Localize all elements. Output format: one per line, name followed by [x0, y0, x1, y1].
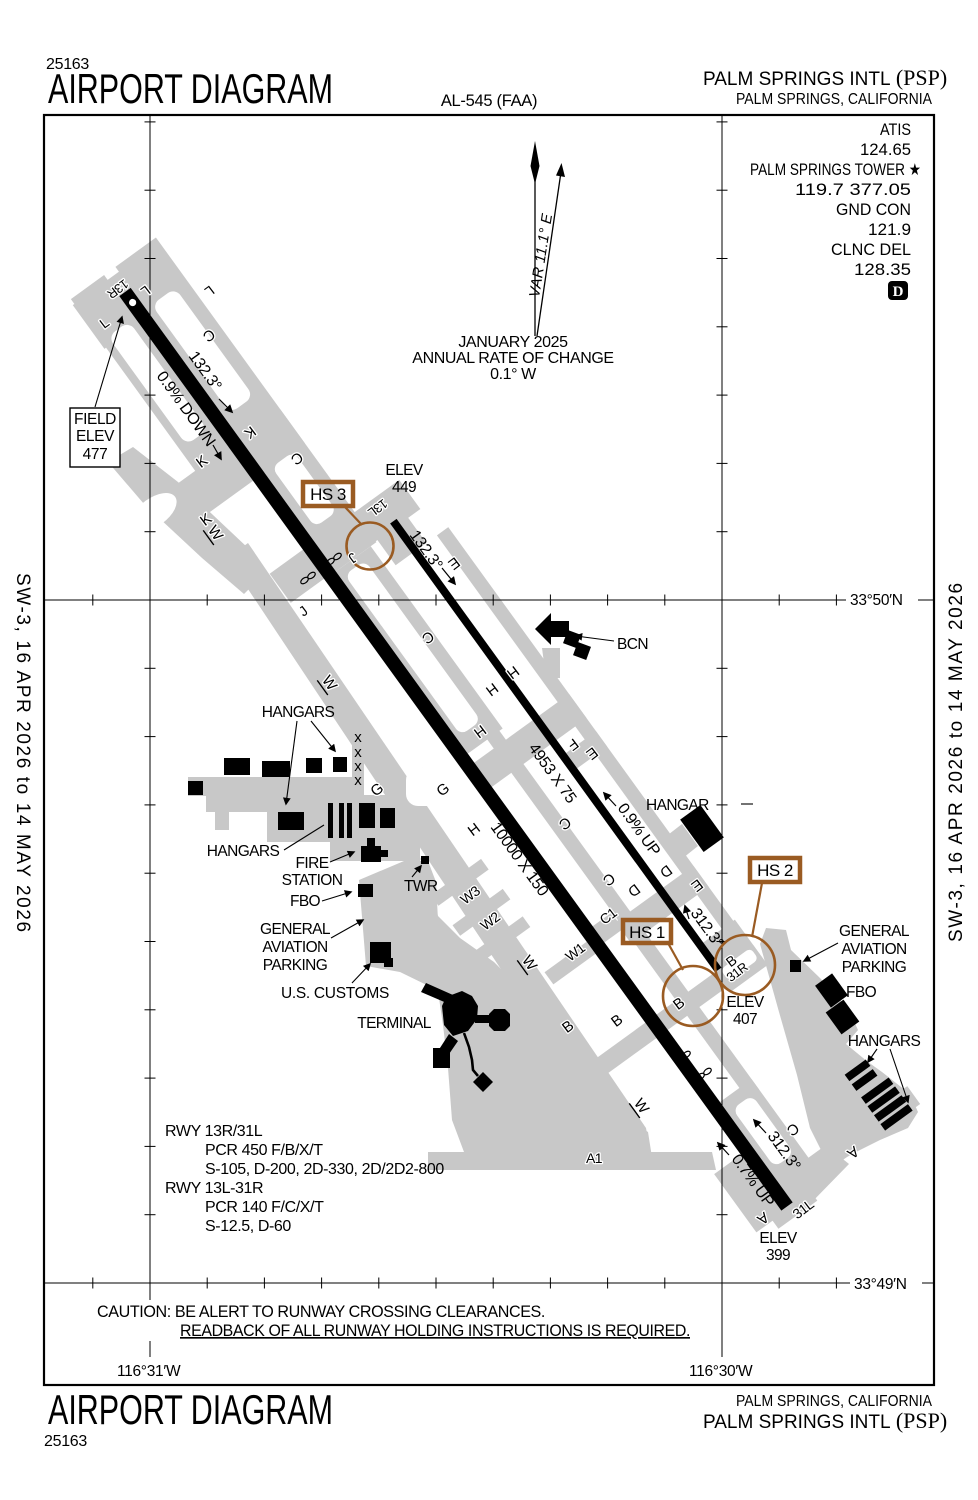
svg-text:S-12.5, D-60: S-12.5, D-60 — [205, 1218, 291, 1235]
svg-text:PALM SPRINGS, CALIFORNIA: PALM SPRINGS, CALIFORNIA — [736, 91, 932, 108]
svg-text:FIELD: FIELD — [74, 411, 116, 428]
svg-text:25163: 25163 — [44, 1433, 87, 1450]
svg-text:GENERAL: GENERAL — [260, 921, 331, 938]
svg-text:JANUARY 2025: JANUARY 2025 — [458, 334, 568, 351]
svg-text:S-105, D-200, 2D-330, 2D/2D2-8: S-105, D-200, 2D-330, 2D/2D2-800 — [205, 1161, 444, 1178]
svg-text:AIRPORT DIAGRAM: AIRPORT DIAGRAM — [48, 1386, 333, 1433]
svg-text:PALM SPRINGS TOWER ★: PALM SPRINGS TOWER ★ — [750, 161, 921, 179]
svg-text:FIRE: FIRE — [296, 855, 329, 872]
svg-text:121.9: 121.9 — [868, 221, 911, 239]
svg-text:CLNC DEL: CLNC DEL — [831, 241, 911, 259]
svg-text:HS 1: HS 1 — [629, 923, 665, 942]
svg-text:ELEV: ELEV — [759, 1230, 797, 1247]
svg-text:U.S. CUSTOMS: U.S. CUSTOMS — [281, 985, 389, 1002]
svg-text:SW-3, 16 APR 2026 to 14 MAY: SW-3, 16 APR 2026 to 14 MAY 2026 — [946, 581, 967, 942]
svg-text:PALM SPRINGS INTL (PSP): PALM SPRINGS INTL (PSP) — [703, 1408, 947, 1433]
svg-text:AL-545 (FAA): AL-545 (FAA) — [441, 92, 537, 110]
svg-text:ELEV: ELEV — [726, 994, 764, 1011]
svg-text:407: 407 — [733, 1011, 757, 1028]
svg-text:TWR: TWR — [404, 878, 438, 895]
svg-text:HANGARS: HANGARS — [848, 1033, 921, 1050]
svg-text:D: D — [656, 861, 675, 881]
svg-text:D: D — [893, 284, 904, 300]
svg-text:ELEV: ELEV — [76, 428, 115, 445]
svg-text:116°30′W: 116°30′W — [689, 1363, 753, 1380]
svg-text:AVIATION: AVIATION — [841, 941, 906, 958]
svg-text:RWY 13L-31R: RWY 13L-31R — [165, 1180, 263, 1197]
svg-text:FBO: FBO — [846, 984, 877, 1001]
svg-text:HANGARS: HANGARS — [207, 843, 280, 860]
svg-text:AVIATION: AVIATION — [262, 939, 327, 956]
svg-text:READBACK OF ALL RUNWAY HOLDING: READBACK OF ALL RUNWAY HOLDING INSTRUCTI… — [180, 1322, 690, 1340]
svg-text:HS 3: HS 3 — [310, 485, 346, 504]
svg-text:BCN: BCN — [617, 636, 648, 653]
svg-text:PARKING: PARKING — [263, 957, 327, 974]
svg-text:128.35: 128.35 — [854, 261, 911, 279]
svg-text:RWY 13R/31L: RWY 13R/31L — [165, 1123, 263, 1140]
svg-text:H: H — [465, 820, 483, 840]
svg-text:H: H — [483, 679, 501, 699]
svg-text:449: 449 — [392, 479, 416, 496]
svg-text:B: B — [608, 1011, 626, 1031]
svg-text:D: D — [624, 880, 643, 900]
svg-text:A1: A1 — [586, 1150, 603, 1166]
svg-text:33°49′N: 33°49′N — [854, 1276, 907, 1293]
svg-text:CAUTION: BE ALERT TO RUNWAY CR: CAUTION: BE ALERT TO RUNWAY CROSSING CLE… — [97, 1303, 545, 1321]
svg-text:GENERAL: GENERAL — [839, 923, 910, 940]
svg-text:HS 2: HS 2 — [757, 861, 793, 880]
svg-text:0.1° W: 0.1° W — [490, 366, 537, 383]
svg-text:AIRPORT DIAGRAM: AIRPORT DIAGRAM — [48, 65, 333, 112]
svg-text:F: F — [564, 735, 581, 754]
svg-text:PCR 140 F/C/X/T: PCR 140 F/C/X/T — [205, 1199, 324, 1216]
svg-text:HANGARS: HANGARS — [262, 704, 335, 721]
svg-text:PALM SPRINGS INTL (PSP): PALM SPRINGS INTL (PSP) — [703, 65, 947, 90]
svg-text:ANNUAL RATE OF CHANGE: ANNUAL RATE OF CHANGE — [412, 350, 613, 367]
svg-text:L: L — [202, 282, 218, 300]
svg-text:116°31′W: 116°31′W — [117, 1363, 181, 1380]
svg-text:VAR 11.1° E: VAR 11.1° E — [526, 212, 556, 299]
svg-text:124.65: 124.65 — [860, 141, 911, 159]
svg-text:ATIS: ATIS — [880, 121, 911, 139]
svg-text:STATION: STATION — [282, 872, 343, 889]
svg-text:477: 477 — [83, 446, 108, 463]
svg-text:33°50′N: 33°50′N — [850, 592, 903, 609]
svg-text:399: 399 — [766, 1247, 790, 1264]
svg-text:GND CON: GND CON — [836, 201, 911, 219]
svg-text:HANGAR: HANGAR — [646, 797, 709, 814]
svg-text:PCR 450 F/B/X/T: PCR 450 F/B/X/T — [205, 1142, 323, 1159]
svg-text:SW-3, 16 APR 2026 to 14 MAY: SW-3, 16 APR 2026 to 14 MAY 2026 — [12, 573, 33, 934]
svg-text:TERMINAL: TERMINAL — [357, 1015, 432, 1032]
svg-text:119.7 377.05: 119.7 377.05 — [795, 181, 911, 199]
svg-text:PARKING: PARKING — [842, 959, 906, 976]
svg-text:FBO: FBO — [290, 893, 321, 910]
svg-text:ELEV: ELEV — [385, 462, 423, 479]
svg-text:x: x — [354, 772, 362, 789]
